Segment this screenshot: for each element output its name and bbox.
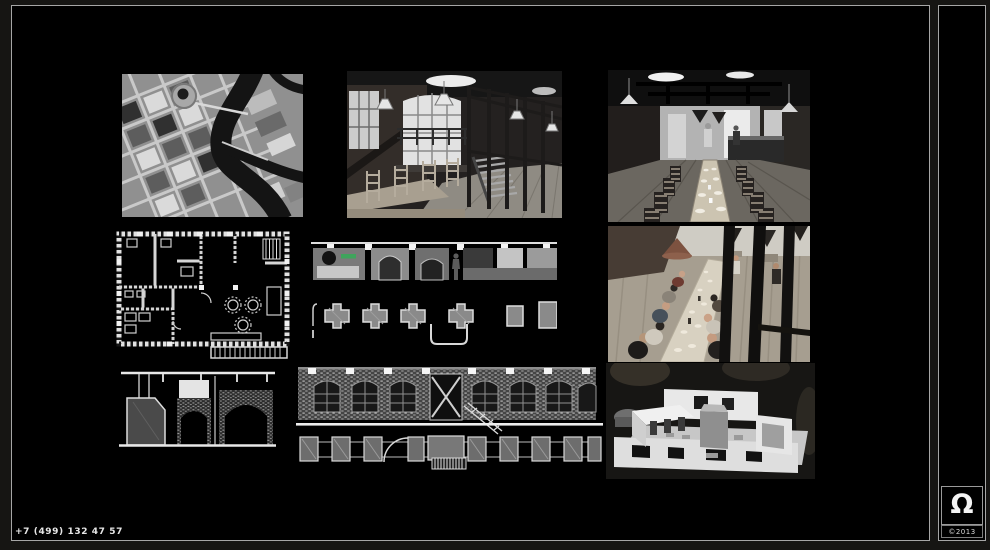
dining-hall-photo-image (608, 70, 810, 222)
facade-elevation-drawing-image (296, 364, 603, 470)
scale-model-photo-image (606, 363, 815, 479)
thumbnail-floor-plan-drawing[interactable] (115, 229, 295, 362)
floor-plan-drawing-image (115, 229, 295, 362)
thumbnail-satellite-map[interactable] (122, 74, 303, 217)
side-column: Ω ©2013 (938, 5, 986, 541)
guests-photo-image (608, 226, 810, 362)
thumbnail-facade-elevation-drawing[interactable] (296, 364, 603, 470)
thumbnail-staircase-photo[interactable] (347, 71, 562, 218)
vault-section-drawing-image (117, 368, 278, 449)
satellite-map-image (122, 74, 303, 217)
thumbnail-dining-hall-photo[interactable] (608, 70, 810, 222)
thumbnail-guests-photo[interactable] (608, 226, 810, 362)
thumbnail-scale-model-photo[interactable] (606, 363, 815, 479)
staircase-photo-image (347, 71, 562, 218)
copyright-badge: ©2013 (941, 525, 983, 538)
brand-logo[interactable]: Ω (941, 486, 983, 525)
portfolio-page: { "colors": { "page_background": "#16151… (0, 0, 990, 550)
elevation-plan-drawing-image (311, 240, 557, 348)
thumbnail-vault-section-drawing[interactable] (117, 368, 278, 449)
copyright-text: ©2013 (948, 528, 975, 536)
omega-logo-glyph: Ω (951, 491, 974, 518)
thumbnail-elevation-plan-drawing[interactable] (311, 240, 557, 348)
phone-number: +7 (499) 132 47 57 (15, 527, 123, 537)
